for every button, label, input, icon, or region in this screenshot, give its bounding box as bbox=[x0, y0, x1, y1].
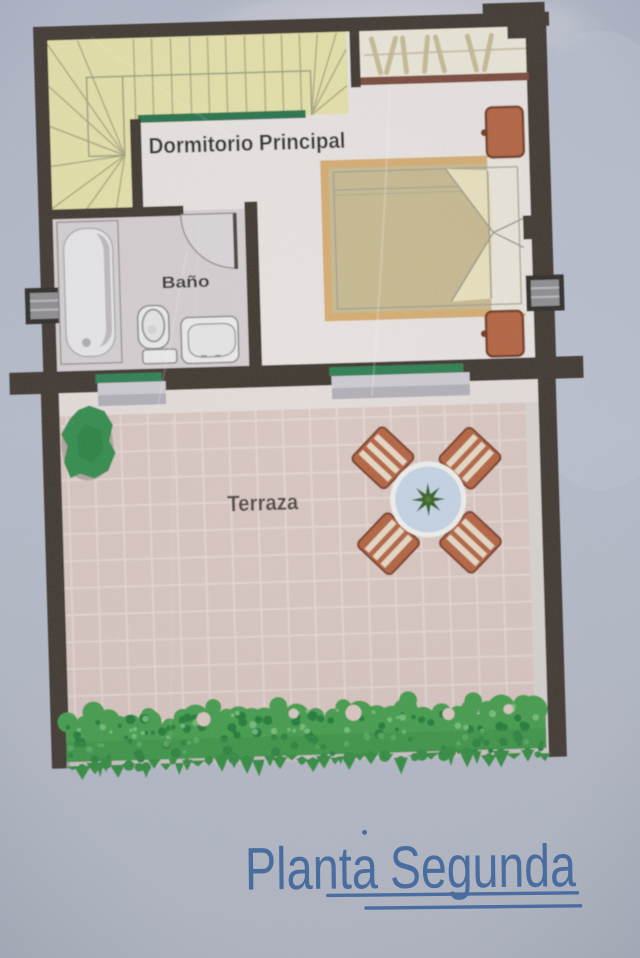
svg-text:Segunda: Segunda bbox=[390, 832, 577, 901]
svg-text:Planta: Planta bbox=[245, 834, 379, 902]
